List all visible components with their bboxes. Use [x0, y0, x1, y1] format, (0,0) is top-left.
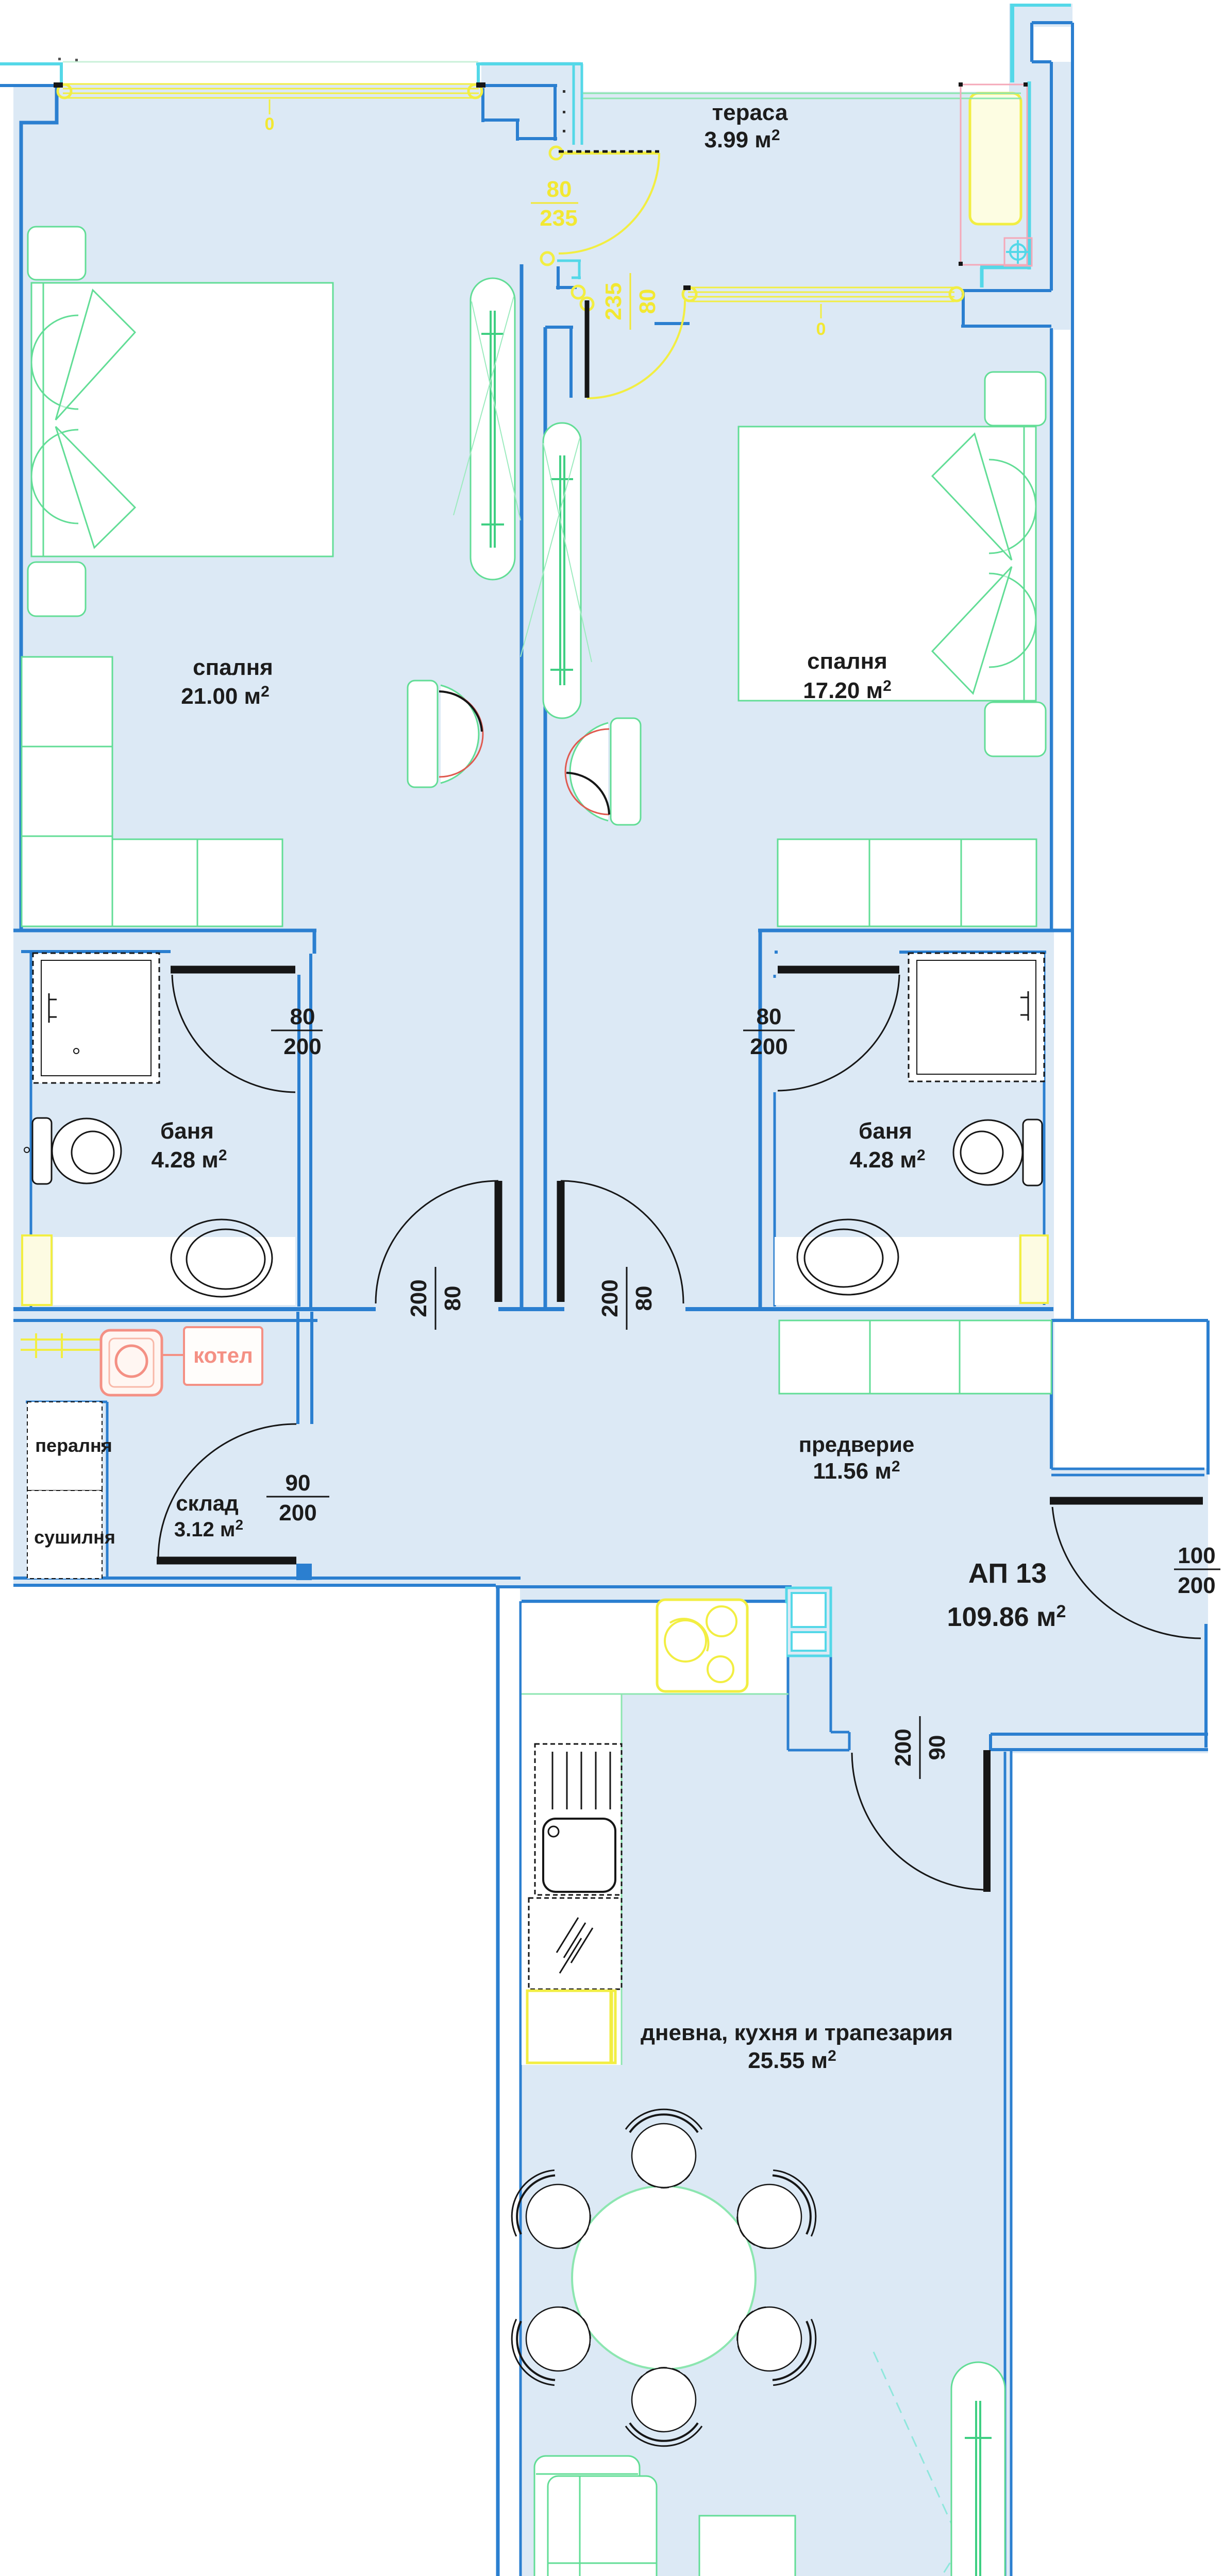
svg-text:котел: котел: [193, 1343, 253, 1367]
svg-text:25.55 м2: 25.55 м2: [748, 2047, 836, 2073]
svg-text:200: 200: [279, 1500, 316, 1526]
svg-text:80: 80: [631, 1286, 657, 1311]
svg-text:АП 13: АП 13: [968, 1558, 1047, 1589]
svg-text:80: 80: [547, 177, 572, 202]
svg-text:склад: склад: [176, 1491, 239, 1515]
svg-text:200: 200: [1178, 1573, 1215, 1598]
svg-text:спалня: спалня: [193, 655, 273, 680]
svg-text:80: 80: [757, 1004, 782, 1029]
svg-text:баня: баня: [160, 1118, 214, 1144]
svg-text:11.56 м2: 11.56 м2: [813, 1458, 900, 1484]
svg-text:90: 90: [286, 1470, 311, 1496]
svg-text:80: 80: [290, 1004, 315, 1029]
svg-text:3.99 м2: 3.99 м2: [704, 127, 780, 152]
svg-text:21.00 м2: 21.00 м2: [181, 683, 270, 709]
svg-text:17.20 м2: 17.20 м2: [803, 677, 892, 703]
svg-text:сушилня: сушилня: [34, 1527, 115, 1548]
svg-text:200: 200: [597, 1279, 623, 1317]
svg-text:4.28 м2: 4.28 м2: [151, 1147, 227, 1173]
svg-text:4.28 м2: 4.28 м2: [849, 1147, 925, 1173]
svg-text:235: 235: [601, 282, 626, 320]
svg-text:200: 200: [406, 1279, 431, 1317]
svg-text:спалня: спалня: [807, 649, 887, 674]
svg-text:дневна, кухня и трапезария: дневна, кухня и трапезария: [641, 2020, 953, 2045]
svg-text:100: 100: [1178, 1543, 1215, 1568]
svg-text:80: 80: [440, 1286, 465, 1311]
svg-text:0: 0: [816, 319, 826, 339]
svg-text:0: 0: [265, 114, 275, 134]
svg-text:109.86 м2: 109.86 м2: [947, 1602, 1066, 1632]
svg-text:пералня: пералня: [35, 1435, 112, 1456]
svg-text:3.12 м2: 3.12 м2: [174, 1517, 243, 1541]
svg-text:235: 235: [540, 206, 577, 231]
svg-text:предверие: предверие: [799, 1432, 915, 1456]
svg-text:200: 200: [750, 1034, 787, 1059]
svg-text:80: 80: [635, 289, 660, 314]
svg-text:баня: баня: [859, 1118, 912, 1144]
svg-text:200: 200: [891, 1728, 916, 1766]
svg-text:200: 200: [283, 1034, 321, 1059]
svg-text:тераса: тераса: [712, 100, 788, 125]
svg-text:90: 90: [925, 1735, 950, 1760]
